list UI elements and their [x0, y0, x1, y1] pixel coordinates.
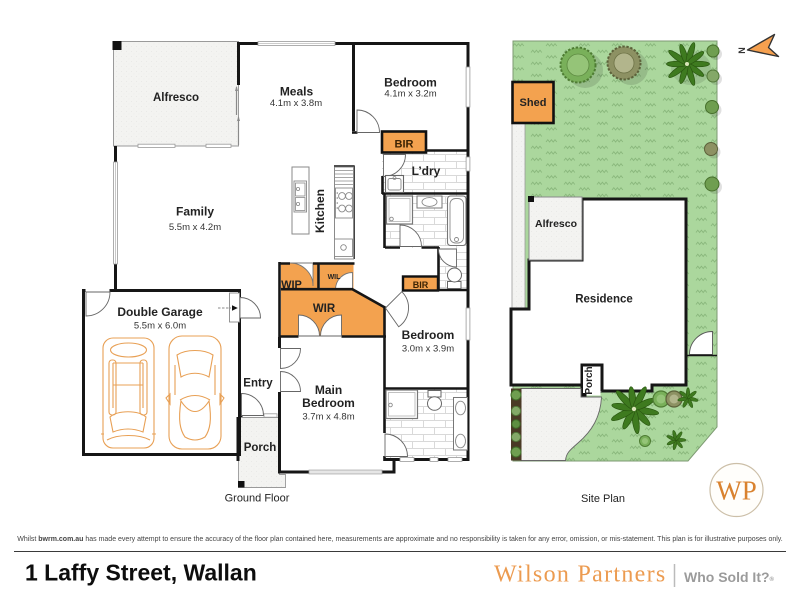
svg-text:Bedroom: Bedroom — [302, 396, 355, 410]
svg-text:Shed: Shed — [520, 97, 547, 109]
svg-text:Kitchen: Kitchen — [313, 189, 327, 233]
svg-text:5.5m x 4.2m: 5.5m x 4.2m — [169, 222, 221, 233]
svg-text:Bedroom: Bedroom — [402, 328, 455, 342]
svg-text:Site Plan: Site Plan — [581, 493, 625, 505]
svg-text:Alfresco: Alfresco — [535, 218, 577, 230]
svg-text:WIL: WIL — [328, 274, 342, 281]
svg-text:Whilst bwrm.com.au has made ev: Whilst bwrm.com.au has made every attemp… — [17, 536, 782, 543]
svg-text:Ground Floor: Ground Floor — [225, 493, 290, 505]
svg-text:Main: Main — [315, 383, 342, 397]
svg-text:WIR: WIR — [313, 303, 336, 315]
svg-text:Residence: Residence — [575, 294, 633, 306]
svg-text:N: N — [737, 47, 747, 54]
svg-text:WP: WP — [716, 476, 757, 506]
svg-text:Double Garage: Double Garage — [117, 305, 203, 319]
svg-text:Family: Family — [176, 205, 214, 219]
svg-text:4.1m x 3.8m: 4.1m x 3.8m — [270, 98, 322, 109]
svg-text:Who Sold It?®: Who Sold It?® — [684, 569, 775, 585]
svg-text:3.7m x 4.8m: 3.7m x 4.8m — [302, 412, 354, 423]
svg-text:4.1m x 3.2m: 4.1m x 3.2m — [384, 89, 436, 100]
svg-text:Wilson Partners: Wilson Partners — [494, 562, 667, 588]
svg-text:Porch: Porch — [244, 442, 277, 454]
svg-text:Alfresco: Alfresco — [153, 92, 199, 104]
svg-text:L’dry: L’dry — [412, 164, 441, 178]
svg-text:1 Laffy Street, Wallan: 1 Laffy Street, Wallan — [25, 560, 257, 586]
svg-text:Porch: Porch — [584, 366, 595, 394]
svg-text:Meals: Meals — [280, 85, 314, 99]
svg-text:Bedroom: Bedroom — [384, 76, 437, 90]
svg-text:3.0m x 3.9m: 3.0m x 3.9m — [402, 344, 454, 355]
svg-text:5.5m x 6.0m: 5.5m x 6.0m — [134, 321, 186, 332]
svg-text:BIR: BIR — [395, 139, 414, 151]
svg-text:BIR: BIR — [413, 280, 429, 290]
svg-text:Entry: Entry — [243, 378, 273, 390]
